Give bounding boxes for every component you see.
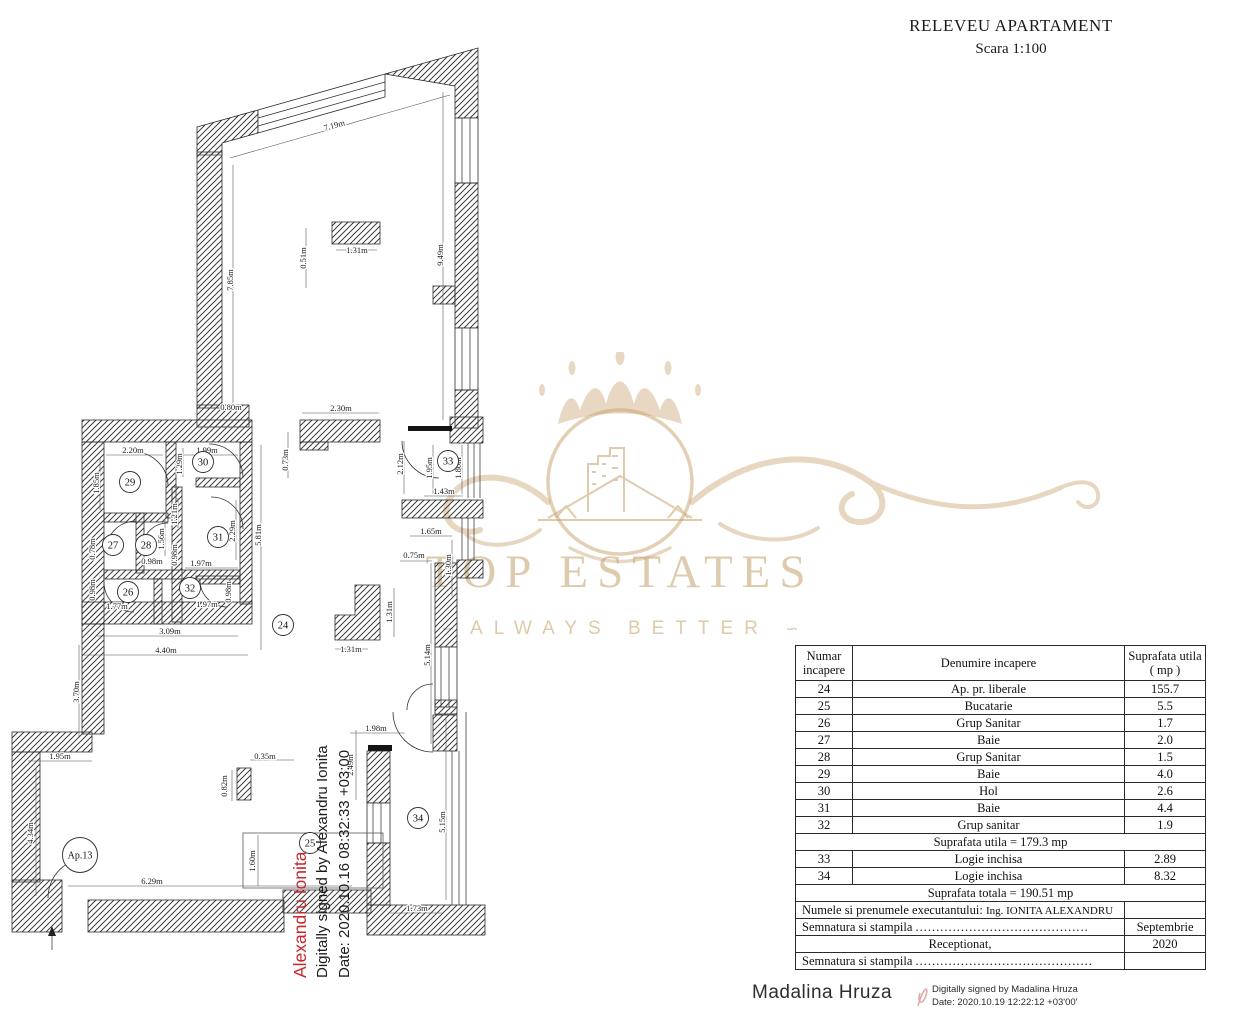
floor-plan-drawing: 7.19m 7.85m 9.49m 0.51m 1.31m 0.80m 2.30… — [0, 0, 520, 1000]
table-row: 25Bucatarie5.5 — [796, 698, 1206, 715]
room-number-cell: 29 — [796, 766, 853, 783]
room-label-24: 24 — [273, 615, 294, 636]
room-number-cell: 34 — [796, 868, 853, 885]
dimension-label: 1.31m — [346, 245, 368, 255]
empty-cell — [1125, 902, 1206, 919]
room-number-cell: 31 — [796, 800, 853, 817]
dimension-label: 4.40m — [155, 645, 177, 655]
title-block: RELEVEU APARTAMENT Scara 1:100 — [846, 16, 1176, 58]
room-name-cell: Baie — [852, 766, 1124, 783]
executant-label: Numele si prenumele executantului: — [802, 903, 983, 917]
signature-details-madalina: Digitally signed by Madalina Hruza Date:… — [932, 983, 1078, 1010]
svg-text:24: 24 — [278, 621, 289, 632]
room-area-cell: 8.32 — [1125, 868, 1206, 885]
dimension-label: 0.98m — [87, 579, 97, 601]
logo-circle — [548, 410, 692, 554]
subtotal-row: Suprafata utila = 179.3 mp — [796, 834, 1206, 851]
dimension-label: 1.31m — [384, 601, 394, 623]
walls — [12, 48, 485, 935]
table-row: 34Logie inchisa8.32 — [796, 868, 1206, 885]
dimension-label: 1.85m — [91, 472, 101, 494]
room-name-cell: Baie — [852, 800, 1124, 817]
dimension-label: 1.77m — [106, 601, 128, 611]
semnatura-label: Semnatura si stampila — [802, 954, 912, 968]
dimension-label: 1.29m — [174, 453, 184, 475]
svg-text:28: 28 — [141, 541, 152, 552]
signature-detail-line1: Digitally signed by Madalina Hruza — [932, 983, 1078, 996]
table-row: 29Baie4.0 — [796, 766, 1206, 783]
dimension-label: 3.70m — [71, 681, 81, 703]
room-area-cell: 1.9 — [1125, 817, 1206, 834]
room-name-cell: Grup sanitar — [852, 817, 1124, 834]
dimension-label: 2.30m — [330, 403, 352, 413]
total-area: Suprafata totala = 190.51 mp — [796, 885, 1206, 902]
room-number-cell: 28 — [796, 749, 853, 766]
top-estates-logo-watermark — [420, 352, 1110, 652]
dimension-label: 6.29m — [141, 876, 163, 886]
drawing-scale: Scara 1:100 — [846, 41, 1176, 58]
signature-dots: ........................................… — [916, 920, 1089, 934]
room-area-cell: 2.89 — [1125, 851, 1206, 868]
room-number-cell: 26 — [796, 715, 853, 732]
dimension-label: 1.65m — [420, 526, 442, 536]
dimension-label: 2.20m — [122, 445, 144, 455]
dimension-label: 5.81m — [253, 524, 263, 546]
receptionat-label: Receptionat, — [796, 936, 1125, 953]
tagline-ornament-right-icon: ∽ — [785, 621, 798, 638]
dimension-label: 5.15m — [437, 811, 447, 833]
svg-text:29: 29 — [125, 478, 136, 489]
svg-text:30: 30 — [198, 458, 209, 469]
signature-name-alexandru: Alexandru Ionita — [290, 852, 311, 978]
dimension-label: 0.98m — [223, 581, 233, 603]
semnatura-label: Semnatura si stampila — [802, 920, 912, 934]
dimension-label: 0.35m — [254, 751, 276, 761]
area-table: Numar incapere Denumire incapere Suprafa… — [795, 645, 1206, 970]
dimension-label: 1.21m — [169, 503, 179, 525]
svg-text:34: 34 — [413, 814, 424, 825]
room-number-cell: 24 — [796, 681, 853, 698]
room-label-31: 31 — [208, 527, 229, 548]
svg-text:27: 27 — [108, 541, 119, 552]
room-label-29: 29 — [120, 472, 141, 493]
room-name-cell: Baie — [852, 732, 1124, 749]
signature-name-madalina: Madalina Hruza — [752, 982, 892, 1004]
receptionat-row: Receptionat, 2020 — [796, 936, 1206, 953]
dimension-label: 1.30m — [443, 554, 453, 576]
dimension-label: 0.78m — [87, 538, 97, 560]
table-row: 27Baie2.0 — [796, 732, 1206, 749]
dimension-label: 3.09m — [159, 626, 181, 636]
table-row: 33Logie inchisa2.89 — [796, 851, 1206, 868]
table-row: 24Ap. pr. liberale155.7 — [796, 681, 1206, 698]
dimension-label: 0.75m — [403, 550, 425, 560]
room-label-34: 34 — [408, 808, 429, 829]
dimension-label: 1.73m — [406, 903, 428, 913]
table-row: 30Hol2.6 — [796, 783, 1206, 800]
svg-text:32: 32 — [185, 584, 196, 595]
dimension-label: 1.97m — [196, 599, 218, 609]
room-label-27: 27 — [103, 535, 124, 556]
executant-row: Numele si prenumele executantului: Ing. … — [796, 902, 1206, 919]
room-label-33: 33 — [438, 451, 459, 472]
dimension-label: 4.34m — [25, 822, 35, 844]
dimension-label: 1.95m — [49, 751, 71, 761]
signature-detail-line1: Digitally signed by Alexandru Ionita — [314, 745, 331, 978]
header-denumire-incapere: Denumire incapere — [852, 646, 1124, 681]
total-row: Suprafata totala = 190.51 mp — [796, 885, 1206, 902]
room-number-cell: 30 — [796, 783, 853, 800]
executant-name: Ing. IONITA ALEXANDRU — [986, 905, 1113, 917]
dimension-label: 0.98m — [169, 544, 179, 566]
dimension-label: 1.98m — [365, 723, 387, 733]
empty-cell — [1125, 953, 1206, 970]
room-area-cell: 2.0 — [1125, 732, 1206, 749]
dimension-label: 0.73m — [280, 449, 290, 471]
dimension-label: 2.12m — [395, 453, 405, 475]
table-row: 26Grup Sanitar1.7 — [796, 715, 1206, 732]
room-name-cell: Hol — [852, 783, 1124, 800]
signature-row-1: Semnatura si stampila ..................… — [796, 919, 1206, 936]
dimension-label: 7.85m — [225, 269, 235, 291]
room-name-cell: Bucatarie — [852, 698, 1124, 715]
dimension-label: 1.60m — [247, 850, 257, 872]
month-cell: Septembrie — [1125, 919, 1206, 936]
room-label-26: 26 — [118, 582, 139, 603]
signature-flourish-icon — [912, 976, 932, 1010]
dimension-label: 0.51m — [298, 247, 308, 269]
table-header-row: Numar incapere Denumire incapere Suprafa… — [796, 646, 1206, 681]
dimension-label: 1.43m — [433, 486, 455, 496]
room-area-cell: 155.7 — [1125, 681, 1206, 698]
svg-text:33: 33 — [443, 457, 454, 468]
room-area-cell: 5.5 — [1125, 698, 1206, 715]
table-row: 31Baie4.4 — [796, 800, 1206, 817]
dimension-label: 0.98m — [141, 556, 163, 566]
room-name-cell: Ap. pr. liberale — [852, 681, 1124, 698]
header-suprafata-utila: Suprafata utila ( mp ) — [1125, 646, 1206, 681]
buildings-icon — [538, 448, 702, 520]
room-area-cell: 1.5 — [1125, 749, 1206, 766]
dimension-label: 0.82m — [219, 775, 229, 797]
room-name-cell: Logie inchisa — [852, 851, 1124, 868]
room-area-cell: 4.0 — [1125, 766, 1206, 783]
room-number-cell: 33 — [796, 851, 853, 868]
signature-detail-line2: Date: 2020.10.19 12:22:12 +03'00' — [932, 996, 1078, 1009]
crown-icon — [539, 352, 701, 424]
subtotal-utila: Suprafata utila = 179.3 mp — [796, 834, 1206, 851]
svg-text:Ap.13: Ap.13 — [68, 851, 93, 862]
dimension-label: 7.19m — [323, 117, 347, 132]
room-label-32: 32 — [180, 578, 201, 599]
signature-dots: ........................................… — [916, 954, 1093, 968]
room-label-28: 28 — [136, 535, 157, 556]
signature-row-2: Semnatura si stampila ..................… — [796, 953, 1206, 970]
room-area-cell: 2.6 — [1125, 783, 1206, 800]
dimension-label: 0.80m — [220, 402, 242, 412]
room-number-cell: 27 — [796, 732, 853, 749]
table-row: 28Grup Sanitar1.5 — [796, 749, 1206, 766]
room-label-30: 30 — [193, 452, 214, 473]
svg-text:26: 26 — [123, 588, 134, 599]
room-area-cell: 1.7 — [1125, 715, 1206, 732]
signature-detail-line2: Date: 2020.10.16 08:32:33 +03:00 — [336, 750, 353, 978]
table-row: 32Grup sanitar1.9 — [796, 817, 1206, 834]
svg-text:31: 31 — [213, 533, 224, 544]
apartment-label: Ap.13 — [63, 838, 98, 873]
room-number-cell: 32 — [796, 817, 853, 834]
room-name-cell: Grup Sanitar — [852, 749, 1124, 766]
dimension-label: 1.31m — [340, 644, 362, 654]
drawing-title: RELEVEU APARTAMENT — [846, 16, 1176, 36]
dimension-label: 1.95m — [424, 457, 434, 479]
year-cell: 2020 — [1125, 936, 1206, 953]
room-name-cell: Grup Sanitar — [852, 715, 1124, 732]
room-name-cell: Logie inchisa — [852, 868, 1124, 885]
header-numar-incapere: Numar incapere — [796, 646, 853, 681]
dimension-label: 1.97m — [190, 558, 212, 568]
room-area-cell: 4.4 — [1125, 800, 1206, 817]
room-number-cell: 25 — [796, 698, 853, 715]
dimension-label: 9.49m — [435, 244, 445, 266]
dimension-label: 1.56m — [156, 528, 166, 550]
dimension-label: 5.14m — [422, 644, 432, 666]
